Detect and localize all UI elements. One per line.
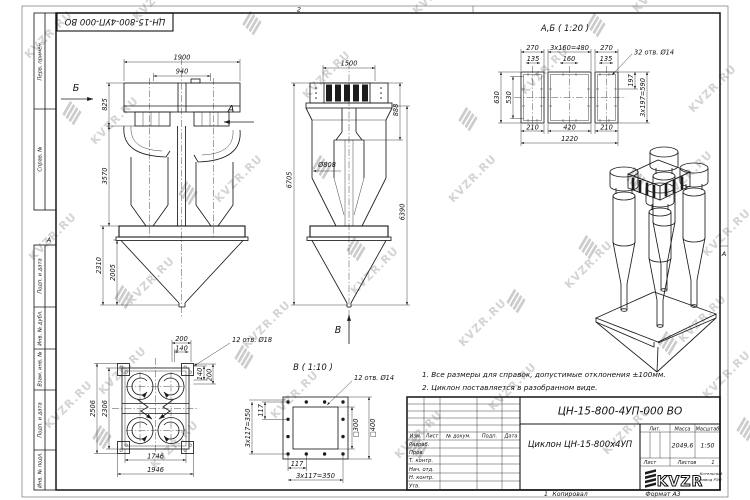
dim-d808: Ø808: [317, 161, 336, 169]
tb-lit-label: Лит.: [648, 427, 661, 433]
holes-note-ab: 32 отв. Ø14: [634, 49, 674, 57]
tb-row-utv: Утв.: [409, 484, 420, 490]
section-v-title: В ( 1:10 ): [293, 363, 333, 373]
dim-825: 825: [101, 98, 109, 111]
company-name-line1: Котельный: [700, 471, 723, 476]
dim-140-right: 140: [196, 368, 204, 381]
tb-scale-value: 1:50: [701, 443, 715, 450]
footer-copied: Копировал: [552, 491, 587, 498]
dim-117-bottom: 117: [291, 460, 304, 468]
company-logo: KVZR Котельный завод РЭП: [645, 469, 723, 490]
front-view: 1900 940 825 3570 2310 2005 Б А: [61, 54, 254, 319]
dim-140-top: 140: [175, 345, 188, 353]
holes-note-plan: 12 отв. Ø18: [232, 336, 272, 344]
top-stamp-text: ЦН-15-800-4УП-000 ВО: [64, 16, 165, 26]
note-line-2: 2. Циклон поставляется в разобранном вид…: [422, 383, 598, 392]
dim-2506: 2506: [89, 400, 97, 417]
dim-1900: 1900: [174, 54, 191, 62]
tb-sheets-label: Листов: [677, 460, 697, 466]
dim-590: 3x197=590: [639, 78, 647, 117]
notes: 1. Все размеры для справок, допустимые о…: [422, 370, 666, 392]
dim-210-left: 210: [526, 124, 539, 132]
dim-1946: 1946: [147, 466, 164, 474]
note-line-1: 1. Все размеры для справок, допустимые о…: [422, 370, 666, 379]
sidebar-label: Подп. и дата: [38, 402, 44, 437]
tb-sheet-label: Лист: [643, 460, 658, 466]
iso-hopper: [596, 292, 716, 372]
sidebar-label: Справ. №: [38, 146, 44, 171]
dim-200-right: 200: [206, 369, 214, 382]
dim-630: 630: [493, 91, 501, 104]
section-ab-view: А,Б ( 1:20 ) 270 3x160=480 270: [493, 24, 674, 146]
holes-note-v: 12 отв. Ø14: [354, 374, 394, 382]
iso-view: [596, 147, 716, 372]
section-v-view: В ( 1:10 ) 12 отв. Ø14 117 3x117=350 117…: [244, 363, 394, 483]
dim-210-right: 210: [600, 124, 613, 132]
tb-col-data: Дата: [504, 434, 518, 440]
dim-6390: 6390: [399, 204, 407, 221]
dim-420: 420: [563, 124, 576, 132]
footer-mark: 1: [544, 491, 548, 498]
view-arrow-label-v: В: [335, 325, 342, 336]
dim-6705: 6705: [286, 172, 294, 189]
dim-530: 530: [505, 91, 513, 104]
dim-135-right: 135: [600, 55, 613, 63]
company-name-line2: завод РЭП: [700, 477, 721, 482]
tb-col-list: Лист: [425, 434, 440, 440]
dim-2005: 2005: [109, 264, 117, 281]
zone-marker-right: А: [721, 250, 726, 258]
sidebar-label: Инв. № дубл.: [38, 310, 44, 346]
dim-270-right: 270: [600, 44, 613, 52]
dim-350-left: 3x117=350: [244, 409, 252, 448]
section-ab-title: А,Б ( 1:20 ): [540, 24, 589, 34]
dim-350-bottom: 3x117=350: [296, 472, 335, 480]
dim-135-left: 135: [527, 55, 540, 63]
dim-2310: 2310: [95, 257, 103, 274]
tb-row-nkontr: Н. контр.: [409, 475, 434, 481]
tb-sheets-value: 1: [711, 460, 714, 466]
plan-view: 200 140 12 отв. Ø18 140 200 2506 2306 17…: [89, 335, 272, 477]
dim-160: 160: [563, 55, 576, 63]
zone-marker-left: А: [46, 236, 51, 244]
drawing-canvas: 2 А А ЦН-15-800-4УП-000 ВО Перв. примен.: [0, 0, 750, 500]
dim-888: 888: [392, 104, 400, 117]
tb-row-razrab: Разраб.: [409, 442, 429, 448]
dim-2306: 2306: [101, 400, 109, 417]
dim-1220: 1220: [561, 135, 578, 143]
zone-marker-top: 2: [297, 6, 301, 14]
dim-197: 197: [627, 73, 635, 86]
logo-text: KVZR: [657, 474, 704, 490]
dim-sq300: □300: [352, 419, 360, 438]
sidebar-label: Взам. инв. №: [38, 351, 44, 386]
dim-270-left: 270: [526, 44, 539, 52]
tb-col-dokum: № докум.: [445, 434, 471, 440]
dim-3570: 3570: [101, 168, 109, 185]
sidebar-cells: Перв. примен. Справ. № Подп. и дата Инв.…: [34, 13, 56, 490]
drawing-sheet: KVZR.RUKVZR.RUKVZR.RUKVZR.RUKVZR.RUKVZR.…: [0, 0, 750, 500]
dim-200-top: 200: [175, 335, 188, 343]
tb-scale-label: Масштаб: [696, 427, 720, 433]
sidebar-label: Инв. № подл.: [38, 452, 44, 488]
view-arrow-label-b: Б: [73, 83, 80, 94]
tb-mass-value: 2049,6: [672, 443, 694, 450]
side-view: 1500 Ø808 6705 888 6390 В: [286, 60, 411, 345]
tb-row-prov: Пров.: [409, 450, 424, 456]
tb-row-nachotd: Нач. отд.: [409, 467, 434, 473]
dim-480: 3x160=480: [550, 44, 589, 52]
tb-doc-number: ЦН-15-800-4УП-000 ВО: [558, 406, 682, 418]
tb-mass-label: Масса: [675, 427, 691, 433]
dim-sq400: □400: [369, 419, 377, 438]
dim-1746: 1746: [147, 453, 164, 461]
dim-940: 940: [176, 68, 189, 76]
title-block: Изм. Лист № докум. Подп. Дата Разраб. Пр…: [407, 397, 723, 490]
tb-product-name: Циклон ЦН-15-800x4УП: [528, 440, 633, 450]
view-arrow-label-a: А: [227, 104, 235, 115]
dim-117-left: 117: [257, 403, 265, 416]
top-designation-stamp: ЦН-15-800-4УП-000 ВО: [57, 13, 173, 31]
footer-format: Формат А3: [645, 491, 680, 498]
tb-col-izm: Изм.: [410, 434, 422, 440]
tb-row-tkontr: Т. контр.: [409, 458, 433, 464]
sidebar-label: Перв. примен.: [38, 42, 44, 81]
dim-1500: 1500: [341, 60, 358, 68]
sidebar-label: Подп. и дата: [38, 258, 44, 293]
tb-col-podp: Подп.: [482, 434, 497, 440]
